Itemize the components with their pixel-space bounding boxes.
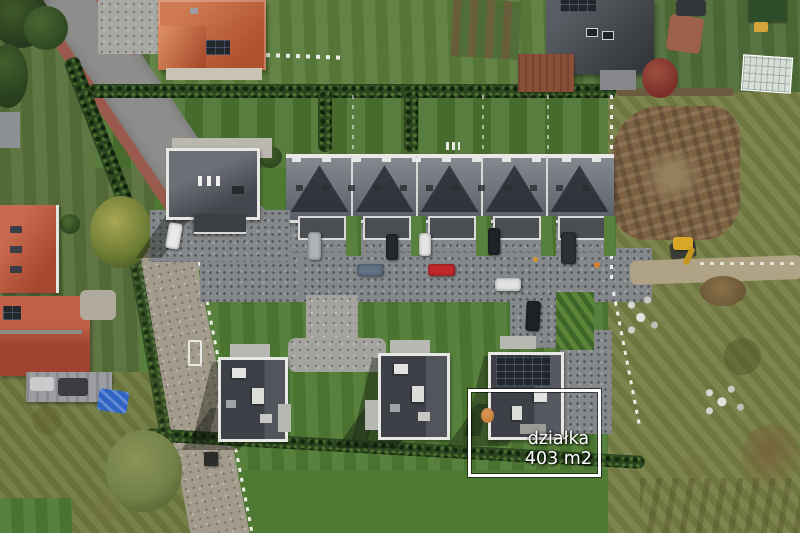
h1-front-walk <box>230 344 270 357</box>
plot-annotation-line2: 403 m2 <box>525 450 592 470</box>
h2-roof-unit-4 <box>418 412 430 421</box>
red-house-1-skylights <box>10 226 22 276</box>
big-tree-bottomleft <box>106 430 182 512</box>
garden-hedge-1 <box>318 90 332 152</box>
h2-roof-unit-1 <box>394 364 408 374</box>
rubble-pile-2 <box>694 382 756 418</box>
red-house-2-ridge <box>0 330 82 334</box>
track-fence-posts <box>700 262 800 265</box>
gravel-patch-left <box>80 290 116 320</box>
rowhouse-ridge-dashes <box>292 158 610 162</box>
van-white-street <box>495 278 521 291</box>
red-ornamental-tree <box>642 58 678 98</box>
carport-vehicle-white <box>30 377 54 391</box>
yellow-garden-item <box>754 22 768 32</box>
red-paved-patch <box>666 14 705 54</box>
car-red <box>428 264 455 276</box>
striped-lawn-east <box>556 292 594 350</box>
h3-front-walk <box>500 336 536 349</box>
roof-terrace-furniture <box>198 176 224 186</box>
garden-fence-2 <box>482 95 484 157</box>
carport-vehicle-dark <box>58 378 88 396</box>
plot-annotation-line1: działka <box>525 430 592 450</box>
greenhouse <box>741 54 793 93</box>
rowhouse-garage-3 <box>428 216 476 240</box>
shed-dark <box>204 452 218 466</box>
rubble-pile-1 <box>620 290 666 340</box>
roof-hatch <box>232 186 244 194</box>
gap-green-1 <box>346 216 361 256</box>
worker-orange-dot-2 <box>533 257 538 262</box>
veg-garden-beds <box>451 0 522 60</box>
gap-green-4 <box>541 216 556 256</box>
green-shed <box>748 0 786 22</box>
dirt-pile <box>700 276 746 306</box>
red-house-2-solar <box>3 306 21 320</box>
blue-tarp <box>97 388 130 414</box>
dark-house-skylight <box>586 28 598 37</box>
plot-annotation-box: działka 403 m2 <box>468 389 601 477</box>
suv-dark-driveway <box>525 301 541 332</box>
h3-solar-array <box>496 356 550 386</box>
brown-annex-roof <box>518 54 574 92</box>
parked-vehicles-top-right <box>676 0 706 16</box>
h1-roof-unit-2 <box>252 388 264 404</box>
h2-front-walk <box>390 340 430 353</box>
car-dark-1 <box>386 234 398 260</box>
aerial-photo: działka 403 m2 <box>0 0 800 533</box>
garden-hedge-2 <box>404 90 418 152</box>
h1-back-patio <box>278 404 291 432</box>
worker-orange-dot <box>594 262 600 268</box>
van-silver <box>308 232 321 260</box>
h1-roof-unit-4 <box>260 414 272 423</box>
play-structure <box>188 340 202 366</box>
red-house-small-roof <box>0 112 20 148</box>
excavation-light-patch <box>640 150 704 202</box>
dark-house-terrace <box>600 70 636 90</box>
chimney-1 <box>190 8 198 14</box>
h2-roof-unit-2 <box>412 386 424 402</box>
orange-house-solar <box>206 40 230 55</box>
sedan-blue <box>357 264 383 276</box>
rowhouse-roofwindows <box>296 185 606 191</box>
car-white-2 <box>419 233 431 256</box>
h1-roof-unit-1 <box>232 368 246 378</box>
estate-garage-roof <box>194 214 246 234</box>
h2-side-patio <box>365 400 378 430</box>
red-house-1-roof <box>0 205 59 293</box>
dark-house-skylight2 <box>602 31 614 40</box>
garden-fence-1 <box>352 95 354 157</box>
plot-annotation-label: działka 403 m2 <box>525 430 592 469</box>
gap-green-5 <box>604 216 616 256</box>
dark-house-solar <box>560 0 596 12</box>
orange-house-patio <box>166 68 262 80</box>
rowhouse-garage-1 <box>298 216 346 240</box>
bottomleft-lawn-corner <box>0 498 72 533</box>
h2-roof-unit-3 <box>390 404 400 412</box>
suv-dark-east <box>561 232 576 264</box>
rowhouse-garage-4 <box>493 216 541 240</box>
garden-furniture-dot <box>446 142 460 150</box>
tree-topleft-2 <box>24 6 68 50</box>
h1-roof-unit-3 <box>226 400 236 408</box>
field-tracks <box>640 478 800 533</box>
car-dark-suv <box>488 228 500 255</box>
garden-fence-3 <box>547 95 549 157</box>
bush-left-1 <box>60 214 80 234</box>
orange-house-wing <box>158 26 206 70</box>
